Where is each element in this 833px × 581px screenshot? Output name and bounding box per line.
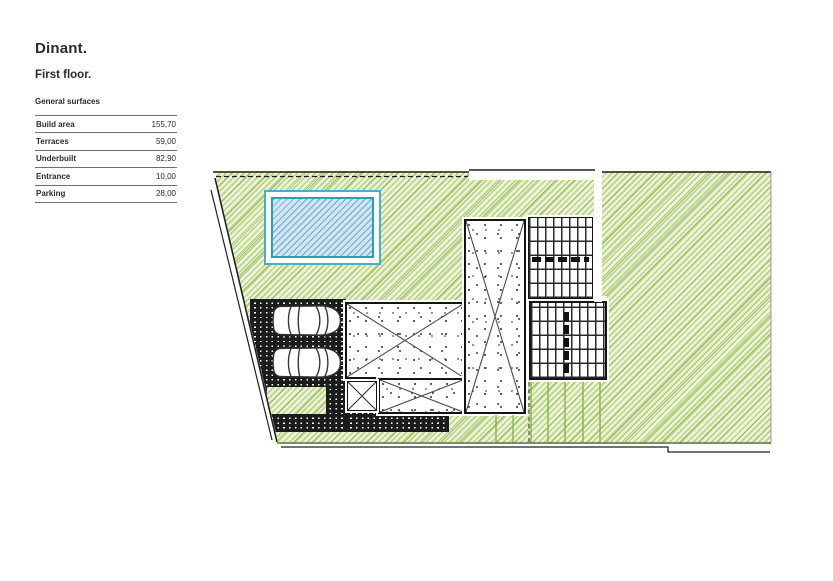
car-top-view-icon	[270, 346, 343, 379]
row-label: Parking	[35, 185, 122, 202]
row-label: Underbuilt	[35, 150, 122, 167]
boundary-wall-top	[469, 169, 595, 180]
row-value: 59,00	[122, 133, 177, 150]
info-panel: Dinant. First floor. General surfaces Bu…	[35, 40, 177, 57]
table-row: Parking 28,00	[35, 185, 177, 202]
pool-water-hatch	[271, 197, 374, 258]
floor-plan-page: Dinant. First floor. General surfaces Bu…	[0, 0, 833, 581]
stair-paving-upper	[528, 217, 593, 299]
table-row: Entrance 10,00	[35, 168, 177, 185]
row-value: 82,90	[122, 150, 177, 167]
table-row: Build area 155,70	[35, 116, 177, 133]
retaining-wall-step	[281, 447, 770, 452]
terrace-slab-lower	[378, 378, 465, 414]
row-value: 28,00	[122, 185, 177, 202]
stair-paving-lower	[529, 301, 607, 380]
page-title: Dinant.	[35, 40, 177, 57]
lawn-inset	[266, 386, 327, 415]
row-label: Build area	[35, 116, 122, 133]
planter-square	[347, 381, 377, 411]
driveway-pavers	[346, 411, 449, 432]
table-row: Terraces 59,00	[35, 133, 177, 150]
surfaces-heading: General surfaces	[35, 97, 100, 106]
row-label: Entrance	[35, 168, 122, 185]
car-top-view-icon	[270, 304, 343, 337]
swimming-pool	[264, 190, 381, 265]
row-value: 10,00	[122, 168, 177, 185]
table-row: Underbuilt 82,90	[35, 150, 177, 167]
terrace-slab-cross	[345, 302, 465, 379]
stair-rail-dashed	[564, 308, 569, 373]
site-lawn-hatch	[0, 0, 833, 581]
terrace-slab-tall	[464, 219, 526, 414]
side-path	[594, 169, 602, 302]
surfaces-table: Build area 155,70 Terraces 59,00 Underbu…	[35, 115, 177, 203]
row-label: Terraces	[35, 133, 122, 150]
stair-rail-dashed	[532, 257, 589, 262]
row-value: 155,70	[122, 116, 177, 133]
page-subtitle: First floor.	[35, 69, 91, 81]
